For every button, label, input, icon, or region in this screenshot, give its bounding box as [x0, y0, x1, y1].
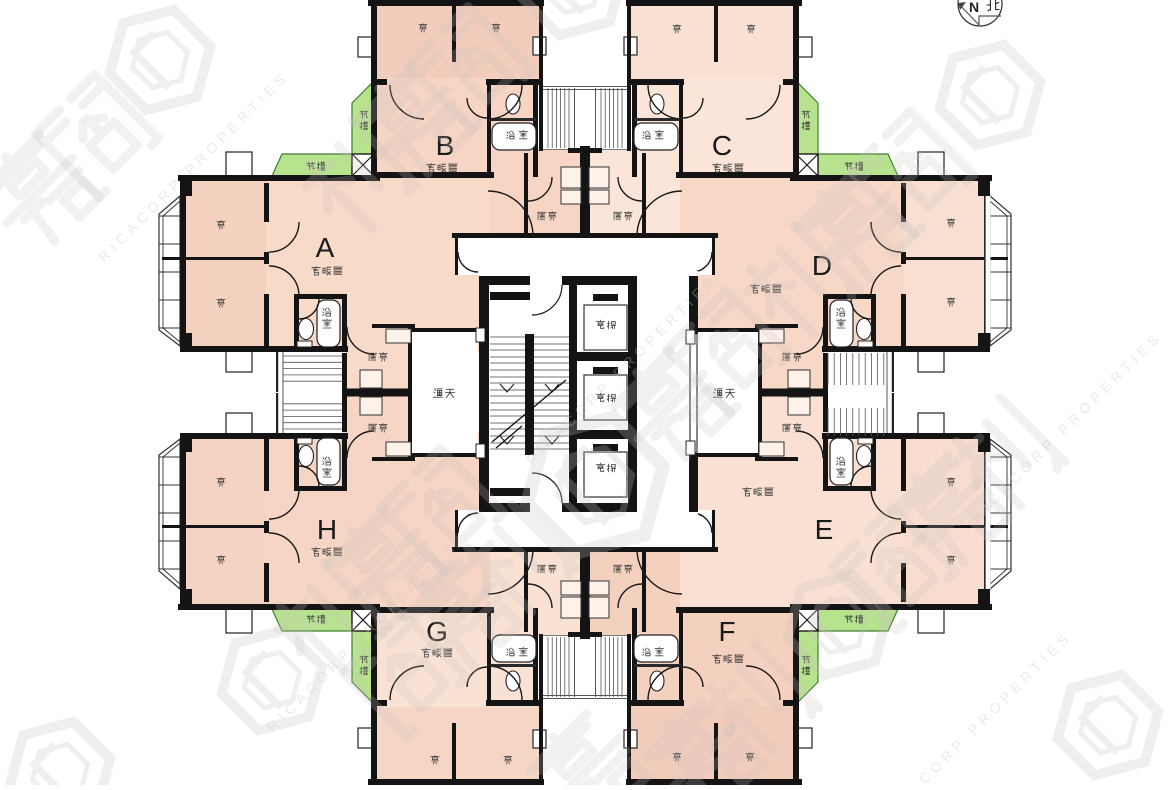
- svg-text:H: H: [317, 514, 337, 545]
- svg-text:C: C: [712, 130, 732, 161]
- svg-text:A: A: [316, 232, 335, 263]
- svg-text:N: N: [969, 0, 979, 15]
- svg-text:E: E: [815, 514, 834, 545]
- svg-text:F: F: [718, 616, 735, 647]
